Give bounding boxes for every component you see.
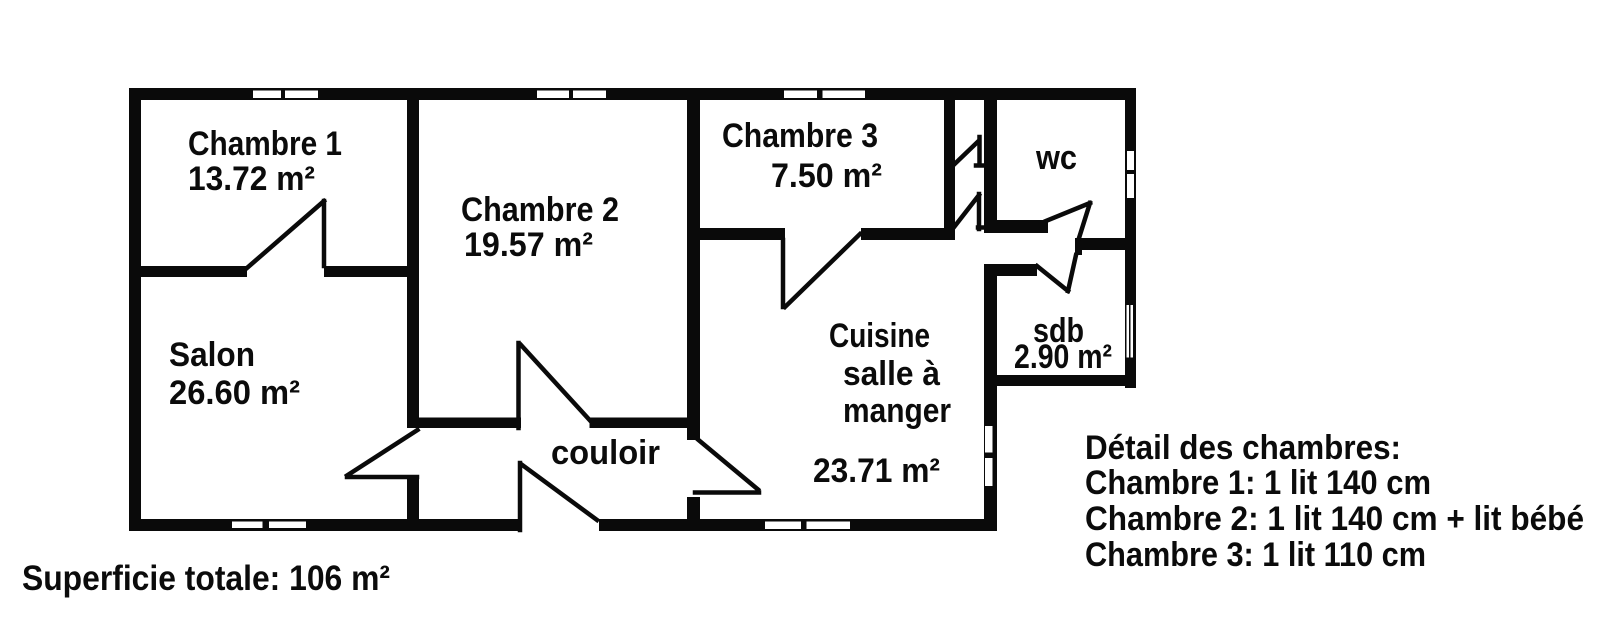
svg-text:19.57 m²: 19.57 m²: [464, 226, 593, 264]
svg-text:couloir: couloir: [551, 434, 660, 472]
svg-text:7.50 m²: 7.50 m²: [771, 157, 882, 195]
svg-text:Chambre 2: Chambre 2: [461, 191, 619, 229]
svg-text:Chambre 3: 1 lit 110 cm: Chambre 3: 1 lit 110 cm: [1085, 536, 1426, 574]
svg-text:manger: manger: [843, 392, 951, 430]
svg-text:Chambre 1: Chambre 1: [188, 125, 342, 163]
svg-text:Superficie totale: 106 m²: Superficie totale: 106 m²: [22, 559, 390, 598]
svg-text:Salon: Salon: [169, 336, 255, 374]
svg-text:salle à: salle à: [843, 355, 940, 393]
svg-text:Chambre 3: Chambre 3: [722, 117, 878, 155]
svg-text:26.60 m²: 26.60 m²: [169, 374, 300, 412]
svg-text:2.90 m²: 2.90 m²: [1014, 338, 1112, 376]
svg-text:23.71 m²: 23.71 m²: [813, 452, 940, 490]
svg-text:13.72 m²: 13.72 m²: [188, 160, 315, 198]
svg-text:wc: wc: [1035, 139, 1077, 177]
svg-text:Cuisine: Cuisine: [829, 317, 930, 355]
svg-text:Détail des chambres:: Détail des chambres:: [1085, 429, 1401, 467]
svg-text:Chambre 1: 1 lit 140 cm: Chambre 1: 1 lit 140 cm: [1085, 464, 1431, 502]
svg-text:Chambre 2: 1 lit 140 cm + lit: Chambre 2: 1 lit 140 cm + lit bébé: [1085, 500, 1584, 538]
